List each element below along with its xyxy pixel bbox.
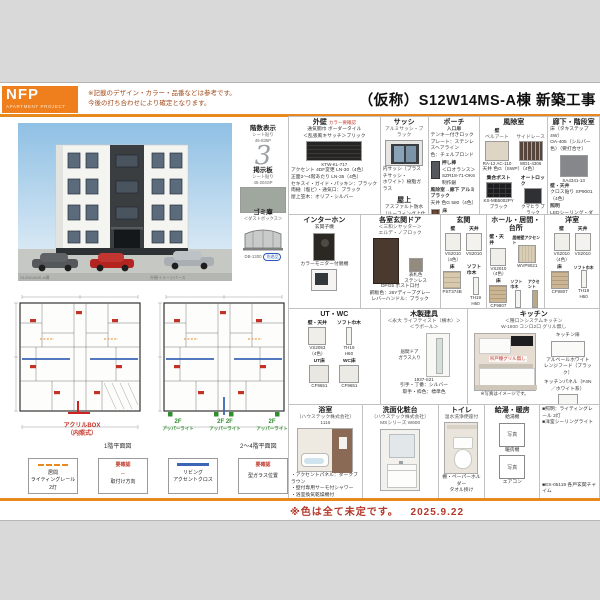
kitchen-door-swatch xyxy=(551,341,585,357)
western-ceiling-swatch xyxy=(575,233,591,251)
cell-bath: 浴室 （ハウステック株式会社） 1116 ・アクセントパネル：ダークブラウン ・… xyxy=(289,405,363,499)
hall-floor-swatch xyxy=(489,285,507,303)
wc-floor-swatch xyxy=(339,365,359,383)
cell-intercom: インターホン 玄関子機 カラーモニター付親機 xyxy=(289,215,361,309)
legend2-title: 要確認 xyxy=(99,462,147,470)
cell-porch: ポーチ 入口扉 テンキー付きロック プレート：ステンレスヘアライン 色：チェルブ… xyxy=(429,117,481,215)
porch-title: ポーチ xyxy=(431,119,478,127)
legend1-line3: 2灯 xyxy=(29,485,77,493)
western-floor-code: CF9807 xyxy=(552,289,568,295)
spec-row-1: 外壁 カラー要確認 通気胴巾 ボーダータイル ＜乱張風キサッチ＞ブリック KTW… xyxy=(289,117,600,215)
plan1-annotation-line2: （内照式） xyxy=(30,431,134,439)
fittings-sub2: ＜ラポール＞ xyxy=(383,325,466,331)
sash-image xyxy=(385,140,423,166)
toilet-l1: 棚・ペーパーホルダー xyxy=(441,475,483,488)
sash-title: サッシ xyxy=(383,119,426,127)
cell-western-room: 洋室 壁 VS2010 （4色） 天井 VS2010 xyxy=(545,215,600,309)
exterior-wall-l4: 正面2〜4階あたり LN-35（4色） xyxy=(291,175,378,182)
disclaimer-line2: 今後の打ち合わせにより確定となります。 xyxy=(88,99,236,109)
autolock-image xyxy=(524,188,542,204)
vanity-title: 洗面化粧台 xyxy=(365,407,436,415)
plan2-f3: 2F xyxy=(226,419,233,425)
nameplate-swatch xyxy=(409,258,423,272)
dustbox-block: ゴミ庫 ＜ダストボックス＞ DB-1300 別途品 xyxy=(238,209,288,261)
sash-l2: ホワイト）樹脂ガラス xyxy=(383,180,426,193)
footer-note: ※色は全て未定です。 2025.9.22 xyxy=(290,503,464,518)
hotwater-title: 給湯・暖房 xyxy=(487,407,537,415)
vanity-sub2: MSシリーズ W600 xyxy=(365,421,436,427)
hall-accent-label: 居間壁アクセント xyxy=(512,235,542,245)
intercom-title: インターホン xyxy=(291,217,358,225)
hall-base-swatch xyxy=(515,290,521,308)
spec-row-3: UT・WC 壁・天井 VS2053 （4色） ソフト巾木 TH19 H60 xyxy=(289,309,600,405)
footer-rule xyxy=(0,498,600,501)
hall-accent-code: WVP9021 xyxy=(517,263,537,269)
exterior-wall-l1: 通気胴巾 ボーダータイル xyxy=(291,127,378,134)
intercom-monitor-image xyxy=(311,269,337,291)
western-wall-swatch xyxy=(554,233,570,251)
dustbox-icon xyxy=(241,224,285,252)
plan2-u3: アッパーライト xyxy=(252,426,292,431)
disclaimer: ※記載のデザイン・カラー・品番などは参考です。 今後の打ち合わせにより確定となり… xyxy=(88,89,236,109)
exterior-tile-swatch xyxy=(306,141,362,161)
windbreak-ceiling: 天井 色G（SWP）（4色） xyxy=(482,167,545,174)
exterior-wall-l7: 屋上笠木：オリブ・シルバー xyxy=(291,195,378,202)
disclaimer-line1: ※記載のデザイン・カラー・品番などは参考です。 xyxy=(88,89,236,99)
render-caption-left: S12W14MS-A棟 xyxy=(20,275,49,281)
kitchen-hood: レンジフード（ブラック） xyxy=(542,364,594,377)
corridor-floor1: 床（タキステップ4W） xyxy=(550,127,597,140)
floor-plan-1f xyxy=(12,293,148,433)
entry-wall-swatch xyxy=(445,233,461,251)
porch-l3: 色：チェルブロンド xyxy=(431,153,478,160)
photo-placeholder-text2: 写真 xyxy=(507,464,517,471)
kitchen-panel-swatch xyxy=(558,394,578,405)
unit-door-image xyxy=(373,238,399,284)
entry-floor-swatch xyxy=(443,271,461,289)
porch-tenjo: 天井 色G 580（4色） xyxy=(431,201,478,208)
corridor-light-label: 照明 xyxy=(550,204,597,211)
western-ceiling-code: VS2010 xyxy=(575,251,591,257)
kitchen-sub2: W-1600 コンロ2口 グリル無し xyxy=(470,325,597,331)
mailboxes-image xyxy=(486,182,512,198)
porch-kaze: 風除室→廊下 アルミブラック xyxy=(431,188,478,201)
plan2-green-right: 2F アッパーライト xyxy=(252,419,292,432)
porch-door-image xyxy=(431,161,440,179)
screenshot-root: { "header": { "logo_title": "NFP", "logo… xyxy=(0,0,600,600)
bath-l1: ・アクセントパネル：ダークブラウン xyxy=(291,473,360,486)
utwc-wall-swatch xyxy=(308,327,326,345)
plan2-green-left: 2F アッパーライト xyxy=(158,419,198,432)
dustbox-sub: ＜ダストボックス＞ xyxy=(238,216,288,222)
roof-title: 屋上 xyxy=(383,197,426,205)
windbreak-swatch-a xyxy=(485,141,509,161)
legend3-line2: アクセントクロス xyxy=(169,477,217,485)
floor-number-block: 階数表示 シート貼り 45-835P 3 xyxy=(238,125,288,169)
cell-toilet: トイレ 温水洗浄便座付 棚・ペーパーホルダー タオル掛け xyxy=(439,405,486,499)
corridor-swatch xyxy=(560,155,588,177)
entry-base-swatch xyxy=(473,277,479,295)
aircon-label: エアコン xyxy=(487,480,537,487)
plan1-caption: 1階平面図 xyxy=(104,441,131,450)
utwc-base-height: H60 xyxy=(345,351,353,357)
hall-accent2-swatch xyxy=(532,290,538,308)
legend4-title: 要確認 xyxy=(239,462,287,470)
roof-l1: アスファルト防水 xyxy=(383,205,426,212)
toilet-l2: タオル掛け xyxy=(441,488,483,495)
autolock-label: オートロック xyxy=(521,176,545,188)
cell-unit-entrance-door: 各室玄関ドア ＜三和シヤッター＞ エルデ・ノブロック 表札色 ステンレス DPG… xyxy=(361,215,441,309)
utwc-title: UT・WC xyxy=(291,311,378,319)
board-block: 掲示板 シート貼り 45-204SP xyxy=(238,167,288,213)
porch-oshibo: 押し棒 xyxy=(442,161,478,168)
legend-glass-position: 要確認 型ガラス位置 xyxy=(238,458,288,494)
notes-l3: ■ES-05119 各戸玄関チャイム xyxy=(542,483,599,496)
spec-sheet-page: NFP APARTMENT PROJECT ※記載のデザイン・カラー・品番などは… xyxy=(0,82,600,521)
entry-title: 玄関 xyxy=(443,217,485,225)
entry-base-height: H60 xyxy=(471,301,479,307)
kitchen-red-note: 吊戸棚グリル無し xyxy=(489,356,527,362)
entry-base-label: ソフト巾木 xyxy=(467,265,485,277)
entry-floor-code: PST374B xyxy=(443,289,462,295)
hotwater-photo-placeholder: 写真 xyxy=(499,423,525,447)
plan2-caption: 2〜4階平面図 xyxy=(240,441,277,450)
plan2-u2: アッパーライト xyxy=(204,426,246,431)
fittings-l2: 取手・枠色：標準色 xyxy=(383,390,466,397)
hall-wall-note: （4色） xyxy=(490,271,506,277)
nfp-logo: NFP APARTMENT PROJECT xyxy=(2,86,78,113)
fittings-door-image xyxy=(426,333,450,377)
sash-sub: アルミサッシ・ブラック xyxy=(383,127,426,139)
hall-title: ホール・居間・台所 xyxy=(489,217,542,233)
corridor-title: 廊下・階段室 xyxy=(550,119,597,127)
western-title: 洋室 xyxy=(547,217,597,225)
building-render xyxy=(18,123,232,281)
legend3-line1: リビング xyxy=(169,470,217,478)
cell-hotwater: 給湯・暖房 給湯機 写真 暖房機 写真 エアコン xyxy=(485,405,540,499)
floor-plan-2-4f xyxy=(156,293,292,433)
porch-l5: SZR18-71-OK6 制作銀 xyxy=(442,174,478,187)
legend4-line2: 型ガラス位置 xyxy=(239,473,287,481)
kitchen-photo-caption: ※写真はイメージです。 xyxy=(474,391,536,397)
fittings-l1: 引手・丁番：シルバー xyxy=(383,383,466,390)
cell-hall-lk: ホール・居間・台所 壁・天井 VS2010 （4色） 居間壁アクセント WVP9… xyxy=(487,215,545,309)
legend2-line2: 取付け方向 xyxy=(99,479,147,487)
ut-floor-swatch xyxy=(309,365,329,383)
intercom-l2: カラーモニター付親機 xyxy=(291,262,358,269)
corridor-wall-spec: クロス貼り SP9001（4色） xyxy=(550,190,597,203)
exterior-wall-l3: アクセント 4DF変更 LN-30（4色） xyxy=(291,168,378,175)
windbreak-code-b: WD1-4306 xyxy=(520,161,542,167)
bath-title: 浴室 xyxy=(291,407,360,415)
kitchen-title: キッチン xyxy=(470,311,597,319)
corridor-floor2: OA-405（シルバー色）（要打合せ） xyxy=(550,140,597,153)
vanity-photo xyxy=(380,429,420,491)
legend-confirm-direction: 要確認 ⇔ 取付け方向 xyxy=(98,458,148,494)
plan2-f2: 2F xyxy=(217,419,224,425)
board-sub2: 45-204SP xyxy=(238,180,288,186)
windbreak-swatch-b xyxy=(519,141,543,161)
utwc-base-swatch xyxy=(346,327,352,345)
hotwater-a-label: 給湯機 xyxy=(487,415,537,422)
entry-wall-note: （4色） xyxy=(445,257,461,263)
unit-door-sub2: エルデ・ノブロック xyxy=(363,231,438,237)
entry-ceiling-code: VS2010 xyxy=(466,251,482,257)
cell-wood-fittings: 木製建具 ＜永大 ライフテイスト（横木）＞ ＜ラポール＞ 居間ドア ガラス入り … xyxy=(381,309,469,405)
entrance xyxy=(114,229,140,248)
wc-floor-code: CF9651 xyxy=(341,383,357,389)
plan2-green-mid: 2F 2F アッパーライト xyxy=(204,419,246,432)
cell-notes: ■照明：ライティングレール 2灯 ■洋室シーリングライト ■ES-05119 各… xyxy=(540,405,600,499)
unit-door-l3: レバーハンドル：ブラック xyxy=(363,297,438,304)
plan2-u1: アッパーライト xyxy=(158,426,198,431)
kitchen-photo: 吊戸棚グリル無し xyxy=(474,333,536,391)
spec-grid: 外壁 カラー要確認 通気胴巾 ボーダータイル ＜乱張風キサッチ＞ブリック KTW… xyxy=(288,116,600,498)
plan1-annotation: アクリルBOX （内照式） xyxy=(30,423,134,439)
notes-l2: ■洋室シーリングライト xyxy=(542,420,597,427)
hall-accent-swatch xyxy=(518,245,536,263)
floor-numeral: 3 xyxy=(238,143,288,169)
intercom-outdoor-image xyxy=(313,233,335,261)
legend-accent-cloth: リビング アクセントクロス xyxy=(168,458,218,494)
western-base-swatch xyxy=(581,270,587,288)
dustbox-tag: 別途品 xyxy=(263,253,281,261)
hotwater-b-label: 暖房機 xyxy=(487,448,537,455)
legend-lighting-rail: 居間 ライティングレール 2灯 xyxy=(28,458,78,494)
notes-l1: ■照明：ライティングレール 2灯 xyxy=(542,407,597,420)
unit-door-title: 各室玄関ドア xyxy=(363,217,438,225)
footer-date: 2025.9.22 xyxy=(411,507,465,518)
footer-note-text: ※色は全て未定です。 xyxy=(290,507,399,518)
toilet-photo xyxy=(444,422,478,474)
spec-row-4: 浴室 （ハウステック株式会社） 1116 ・アクセントパネル：ダークブラウン ・… xyxy=(289,405,600,499)
cell-corridor: 廊下・階段室 床（タキステップ4W） OA-405（シルバー色）（要打合せ） S… xyxy=(548,117,600,215)
blue-line-icon xyxy=(177,463,209,466)
ut-floor-code: CF9651 xyxy=(311,383,327,389)
western-floor-swatch xyxy=(551,271,569,289)
logo-title: NFP xyxy=(6,87,74,102)
cell-exterior-wall: 外壁 カラー要確認 通気胴巾 ボーダータイル ＜乱張風キサッチ＞ブリック KTW… xyxy=(289,117,381,215)
windbreak-title: 風除室 xyxy=(482,119,545,127)
western-wall-note: （4色） xyxy=(554,257,570,263)
cell-ut-wc: UT・WC 壁・天井 VS2053 （4色） ソフト巾木 TH19 H60 xyxy=(289,309,381,405)
legend1-line2: ライティングレール xyxy=(29,477,77,485)
mailboxes-code: KS-MB5002PY ブラック xyxy=(482,198,514,210)
bath-photo xyxy=(297,428,353,472)
logo-subtitle: APARTMENT PROJECT xyxy=(6,104,74,109)
porch-l1: テンキー付きロック xyxy=(431,133,478,140)
cell-windbreak: 風除室 壁 ベルアート RA-12 AC-110 サイドレース WD1-4306… xyxy=(480,117,548,215)
building xyxy=(56,145,188,255)
kitchen-panel: キッチンパネル（F4N／ホワイト系） xyxy=(542,380,594,393)
legend1-line1: 居間 xyxy=(29,470,77,478)
utwc-wall-note: （4色） xyxy=(309,351,325,357)
kitchen-door-label: キッチン扉 xyxy=(542,333,594,340)
entry-ceiling-swatch xyxy=(466,233,482,251)
spec-row-2: インターホン 玄関子機 カラーモニター付親機 各室玄関ドア ＜三和シヤッター＞ … xyxy=(289,215,600,309)
autolock-code: クマヒラ ブラック xyxy=(521,204,545,215)
dustbox-code: DB-1300 xyxy=(245,254,262,260)
hall-accent2-label: アクセント xyxy=(528,279,542,289)
porch-l2: プレート：ステンレスヘアライン xyxy=(431,140,478,153)
cell-entry: 玄関 壁 VS2010 （4色） 天井 VS2010 xyxy=(441,215,488,309)
western-base-height: H60 xyxy=(579,294,587,300)
plan1-annotation-line1: アクリルBOX xyxy=(30,423,134,431)
unit-door-l1: DPG5 ポスト口付 xyxy=(363,284,438,291)
exterior-wall-l2: ＜乱張風キサッチ＞ブリック xyxy=(291,134,378,141)
direction-arrow-icon: ⇔ xyxy=(99,470,147,479)
cell-sash-roof: サッシ アルミサッシ・ブラック 内サッシ（プラスチサッシ・ ホワイト）樹脂ガラス… xyxy=(381,117,429,215)
cell-kitchen: キッチン ＜種口＞システムキッチン W-1600 コンロ2口 グリル無し 吊戸棚… xyxy=(468,309,600,405)
photo-placeholder-text: 写真 xyxy=(507,431,517,438)
toilet-title: トイレ xyxy=(441,407,483,415)
hall-wall-label: 壁・天井 xyxy=(489,235,507,247)
exterior-wall-title: 外壁 xyxy=(313,119,327,126)
bath-sub2: 1116 xyxy=(291,421,360,427)
intercom-l1: 玄関子機 xyxy=(291,225,358,232)
fittings-title: 木製建具 xyxy=(383,311,466,319)
exterior-wall-note: カラー要確認 xyxy=(329,120,356,125)
cell-vanity: 洗面化粧台 （ハウステック株式会社） MSシリーズ W600 xyxy=(363,405,439,499)
render-caption-right: 外観イメージパース xyxy=(150,275,185,281)
page-title: （仮称）S12W14MS-A棟 新築工事 xyxy=(359,89,596,110)
heater-photo-placeholder: 写真 xyxy=(499,455,525,479)
orange-dash-icon xyxy=(38,464,68,466)
hall-wall-swatch xyxy=(490,248,506,266)
toilet-sub: 温水洗浄便座付 xyxy=(441,415,483,421)
fittings-note2: ガラス入り xyxy=(398,355,420,361)
hall-base-label: ソフト巾木 xyxy=(510,279,524,289)
sash-l1: 内サッシ（プラスチサッシ・ xyxy=(383,167,426,180)
